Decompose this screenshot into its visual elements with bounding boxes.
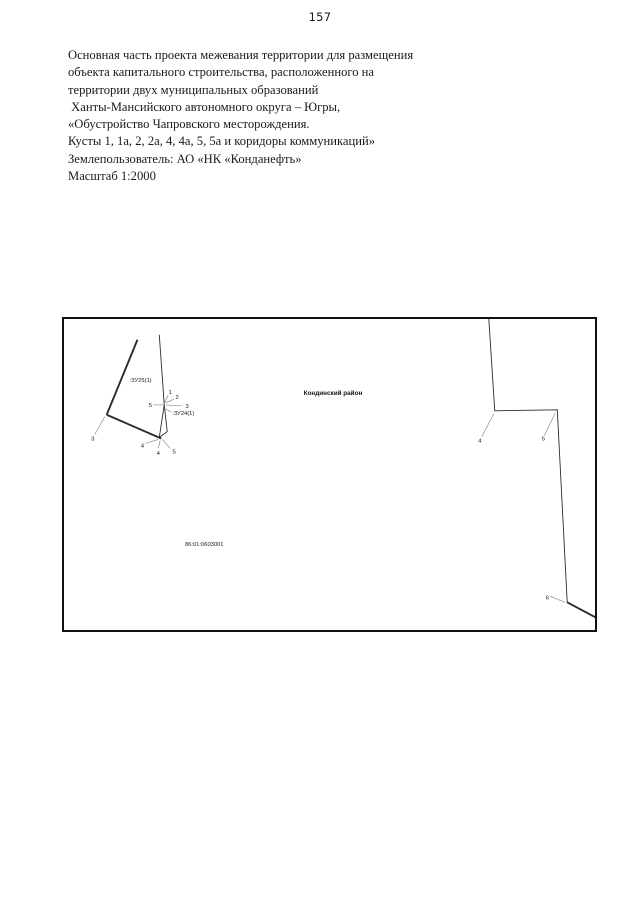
parcel-label-zu25: :ЗУ25(1) — [130, 378, 152, 384]
title-line: объекта капитального строительства, расп… — [68, 64, 538, 81]
right-boundary-leader-lines — [482, 413, 565, 603]
point-label-4b: 4 — [157, 451, 161, 457]
point-label-r6: 6 — [546, 595, 550, 601]
district-label: Кондинский район — [304, 389, 363, 397]
parcel-label-zu24: :ЗУ24(1) — [172, 411, 194, 417]
point-label-3b: 3 — [91, 436, 95, 442]
title-block: Основная часть проекта межевания террито… — [68, 47, 538, 185]
title-line: Основная часть проекта межевания террито… — [68, 47, 538, 64]
cadastral-quarter-label: 86:01:0603001 — [185, 542, 223, 548]
page-number: 157 — [0, 10, 640, 24]
left-parcel-boundary-lines — [107, 335, 168, 439]
point-label-5b: 5 — [173, 449, 177, 455]
right-boundary-lines — [489, 319, 595, 618]
point-label-r4: 4 — [478, 438, 482, 444]
point-label-5: 5 — [149, 403, 153, 409]
title-line: Масштаб 1:2000 — [68, 168, 538, 185]
title-line: Землепользователь: АО «НК «Конданефть» — [68, 151, 538, 168]
site-plan-svg: :ЗУ25(1) :ЗУ24(1) 1 2 3 5 3 4 4 5 Кондин… — [64, 319, 595, 630]
point-label-1: 1 — [169, 390, 172, 396]
point-label-3: 3 — [185, 404, 189, 410]
left-parcel-leader-lines — [95, 395, 182, 448]
title-line: Кусты 1, 1а, 2, 2а, 4, 4а, 5, 5а и корид… — [68, 133, 538, 150]
point-label-4a: 4 — [141, 443, 145, 449]
document-page: 157 Основная часть проекта межевания тер… — [0, 0, 640, 905]
title-line: «Обустройство Чапровского месторождения. — [68, 116, 538, 133]
title-line: территории двух муниципальных образовани… — [68, 82, 538, 99]
point-label-r5: 5 — [542, 436, 546, 442]
point-label-2: 2 — [175, 395, 178, 401]
site-plan-box: :ЗУ25(1) :ЗУ24(1) 1 2 3 5 3 4 4 5 Кондин… — [62, 317, 597, 632]
title-line: Ханты-Мансийского автономного округа – Ю… — [68, 99, 538, 116]
